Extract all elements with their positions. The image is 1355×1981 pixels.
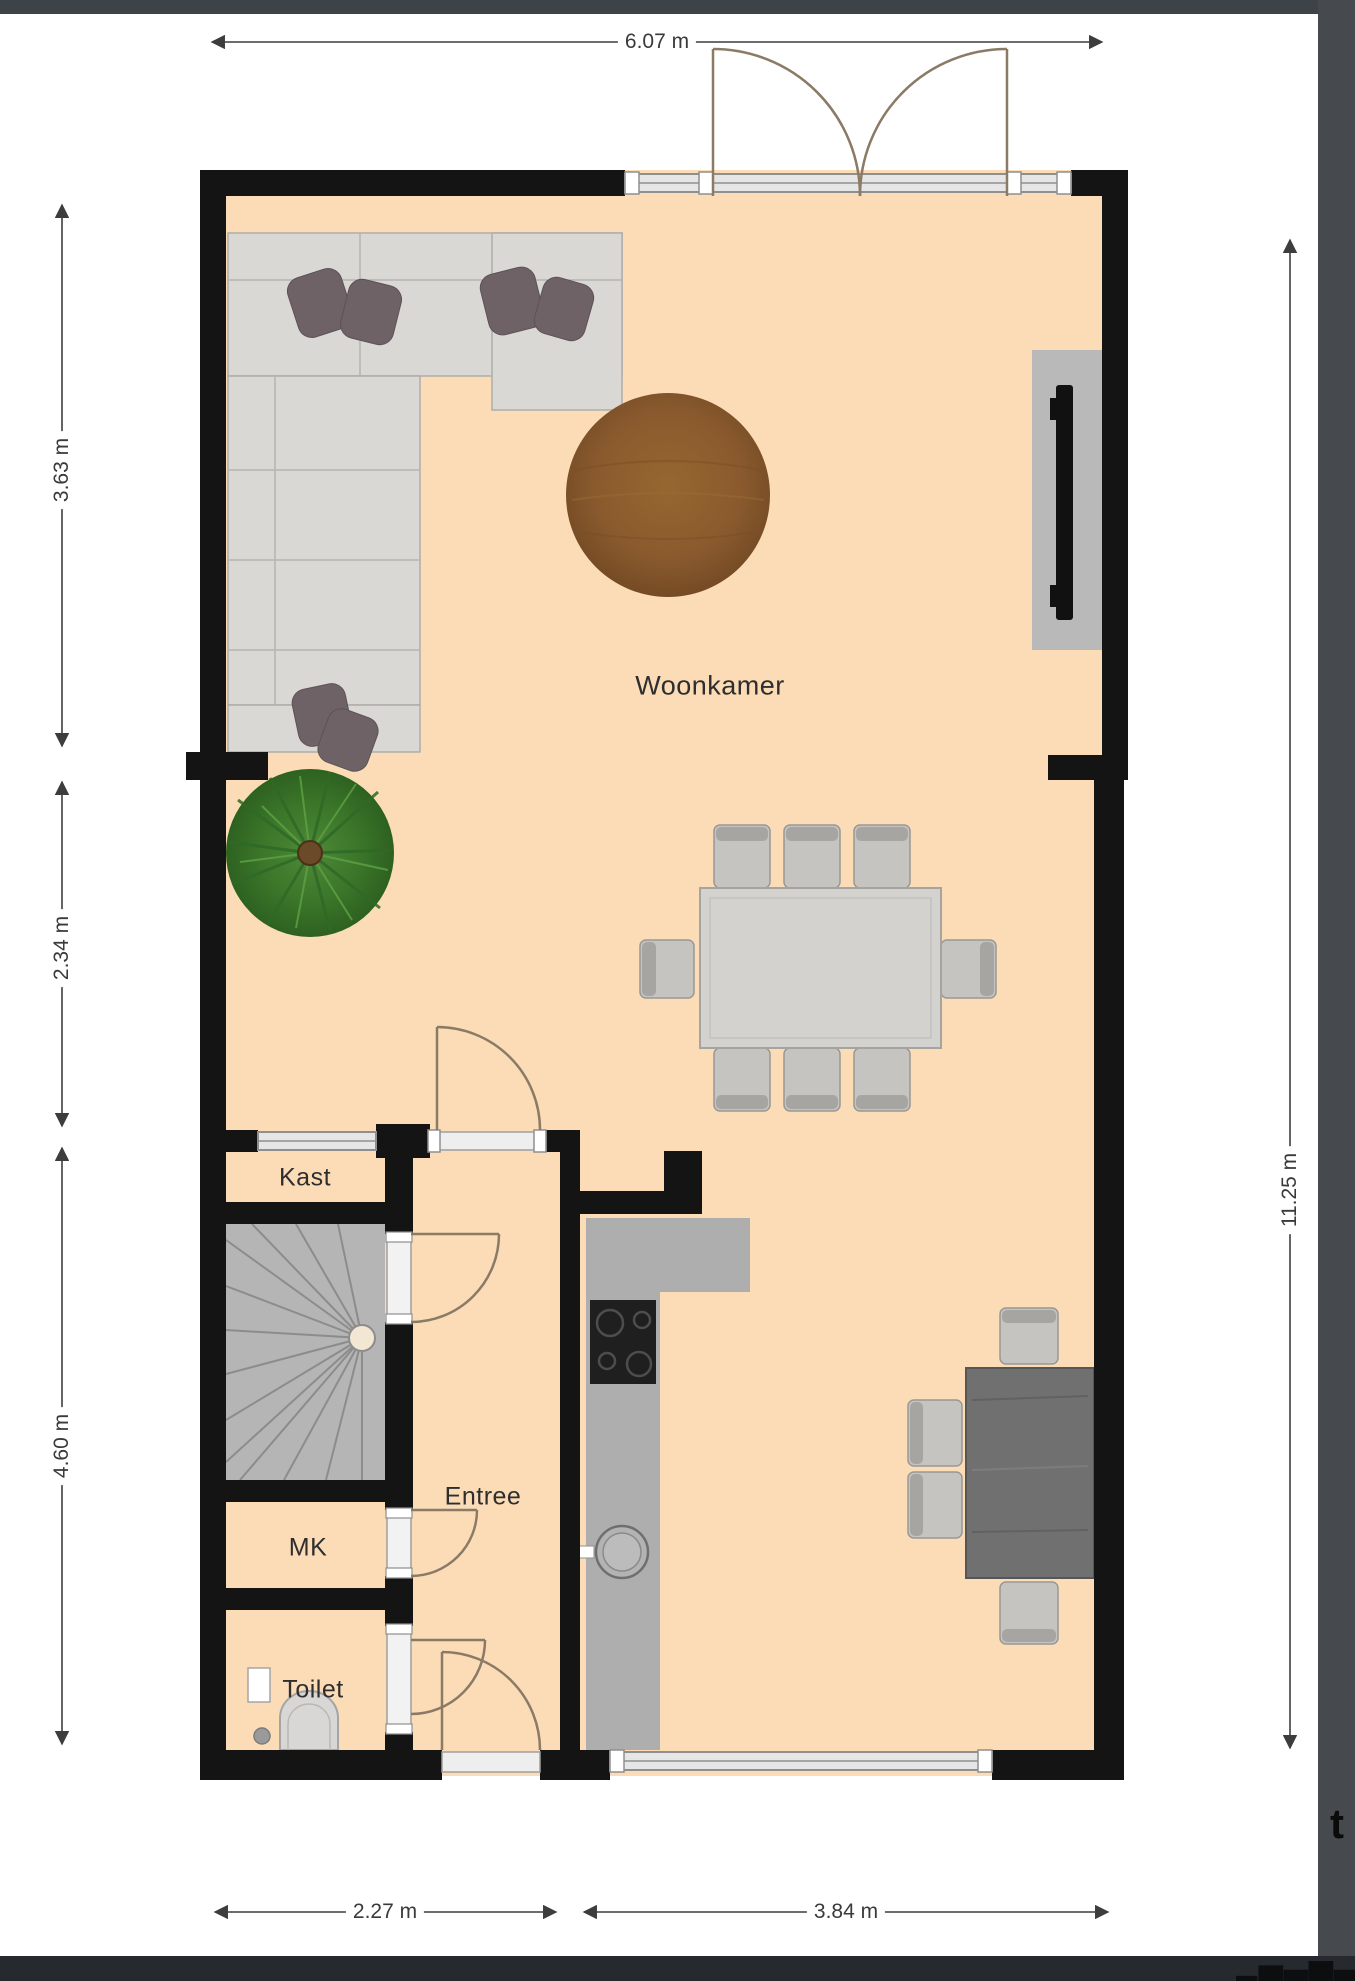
dim-left-middle-label: 2.34 m (49, 909, 75, 987)
top-screen-band (0, 0, 1355, 14)
right-screen-band (1318, 0, 1355, 1981)
cropped-text-fragment-bottom: ▄▆▅▇▅▆▄▅ (1236, 1958, 1355, 1981)
floor-drain (254, 1728, 270, 1744)
winder-staircase (226, 1224, 385, 1480)
dining-table (700, 888, 941, 1048)
tv-wall-unit (1032, 350, 1102, 650)
dim-top-label: 6.07 m (618, 29, 696, 55)
room-label-entree: Entree (445, 1483, 522, 1512)
room-label-mk: MK (289, 1534, 328, 1563)
cropped-text-fragment-right: t (1330, 1800, 1344, 1848)
room-label-kast: Kast (279, 1164, 331, 1193)
small-sink (248, 1668, 270, 1702)
floor-plan-drawing (0, 0, 1355, 1981)
dim-bottom-right-label: 3.84 m (807, 1899, 885, 1925)
bottom-screen-band (0, 1956, 1355, 1981)
room-label-toilet: Toilet (282, 1676, 343, 1705)
dim-bottom-left-label: 2.27 m (346, 1899, 424, 1925)
house-plant (226, 769, 394, 937)
room-label-woonkamer: Woonkamer (635, 671, 785, 702)
dim-right-label: 11.25 m (1277, 1146, 1303, 1234)
dim-left-upper-label: 3.63 m (49, 431, 75, 509)
round-wood-rug (566, 393, 770, 597)
floor-plan-screenshot: Woonkamer Kast Entree MK Toilet 6.07 m 3… (0, 0, 1355, 1981)
dark-dining-table (966, 1368, 1094, 1578)
dim-left-lower-label: 4.60 m (49, 1407, 75, 1485)
